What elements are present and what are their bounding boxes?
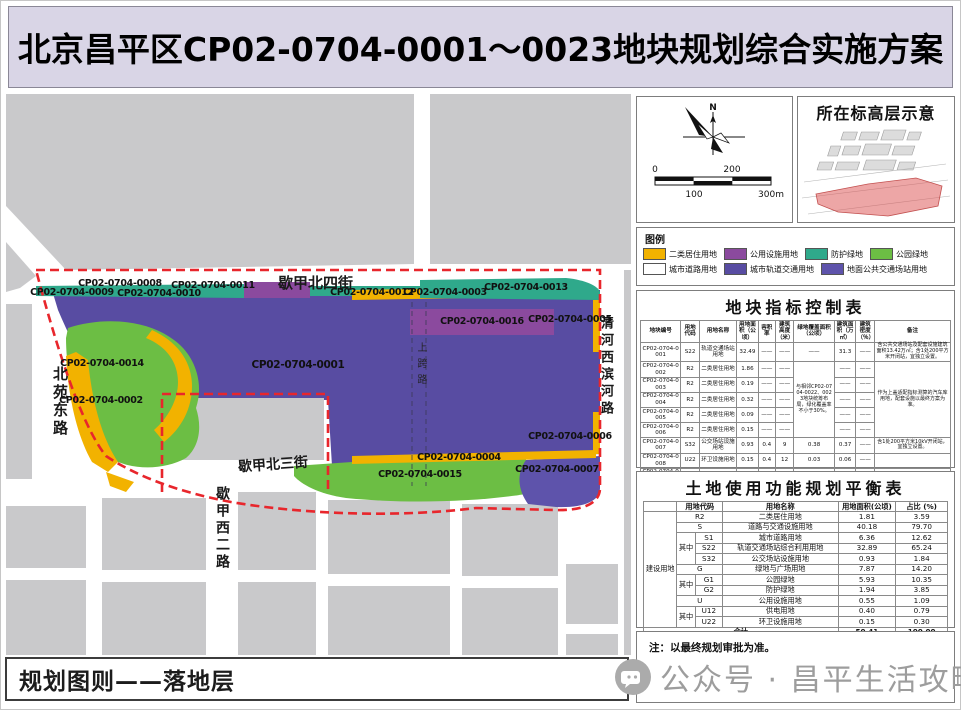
cell: —— (775, 408, 794, 423)
cell: 二类居住用地 (699, 362, 736, 377)
transit-swatch-icon (821, 263, 844, 275)
legend-item-transit-station: 地面公共交通场站用地 (821, 263, 927, 275)
control-table-title: 地块指标控制表 (637, 294, 954, 318)
cell: 防护绿地 (723, 585, 839, 596)
header-cell: 建筑面积（万㎡） (834, 321, 856, 343)
cell: 公用设施用地 (723, 596, 839, 607)
table-row: U公用设施用地0.551.09 (644, 596, 948, 607)
cell: —— (775, 423, 794, 438)
cell: 40.18 (838, 522, 896, 533)
legend-item-park-green: 公园绿地 (870, 248, 928, 260)
header-cell: 用地代码 (677, 502, 723, 512)
cell: 其中 (677, 575, 695, 596)
protective-green-swatch-icon (805, 248, 828, 260)
cell: 9 (775, 438, 794, 453)
cell: 0.79 (896, 606, 948, 617)
cell: U (677, 596, 723, 607)
plot-0002-area-tip (106, 472, 134, 492)
cell: 0.4 (758, 438, 775, 453)
cell (874, 453, 950, 468)
cell: 0.40 (838, 606, 896, 617)
cell: —— (775, 362, 794, 377)
cell: —— (758, 377, 775, 392)
table-row: 建设用地R2二类居住用地1.813.59 (644, 512, 948, 523)
cell: 3.85 (896, 585, 948, 596)
header-cell: 用地代码 (681, 321, 700, 343)
cell: S1 (695, 533, 722, 544)
elevation-title: 所在标高层示意 (798, 100, 954, 124)
cell: 公交场站设施用地 (699, 438, 736, 453)
scale-bar: 0 200 100 300m (652, 165, 784, 200)
cell: —— (856, 423, 875, 438)
header-cell: 地块编号 (641, 321, 681, 343)
cell: 0.09 (737, 408, 759, 423)
cell: 6.36 (838, 533, 896, 544)
balance-table: 用地代码用地名称用地面积(公顷)占比 (%)建设用地R2二类居住用地1.813.… (637, 501, 954, 638)
cell: 二类居住用地 (723, 512, 839, 523)
cell: R2 (677, 512, 723, 523)
cell: —— (834, 362, 856, 377)
cell: —— (834, 423, 856, 438)
header-cell: 用地名称 (723, 502, 839, 512)
cell: 1.81 (838, 512, 896, 523)
control-table-panel: 地块指标控制表 地块编号用地代码用地名称用地面积（公顷）容积率建筑高度（米）绿地… (636, 290, 955, 468)
table-row: CP02-0704-0007S32公交场站设施用地0.930.490.380.3… (641, 438, 951, 453)
cell: 14.20 (896, 564, 948, 575)
cell: —— (794, 342, 834, 362)
cell: 公交场站设施用地 (723, 554, 839, 565)
compass-rose-icon (683, 107, 745, 155)
cell: —— (758, 342, 775, 362)
legend-title: 图例 (645, 231, 954, 246)
cell: —— (834, 392, 856, 407)
cell: 79.70 (896, 522, 948, 533)
cell: 1.84 (896, 554, 948, 565)
park-green-swatch-icon (870, 248, 893, 260)
cell: 0.38 (794, 438, 834, 453)
road-swatch-icon (643, 263, 666, 275)
cell: 0.55 (838, 596, 896, 607)
cell: 环卫设施用地 (723, 617, 839, 628)
header-cell: 容积率 (758, 321, 775, 343)
cell: U22 (681, 453, 700, 468)
cell: CP02-0704-0005 (641, 408, 681, 423)
cell: —— (856, 342, 875, 362)
residential-swatch-icon (643, 248, 666, 260)
cell: 32.49 (737, 342, 759, 362)
legend-item-protective-green: 防护绿地 (805, 248, 863, 260)
legend-item-residential: 二类居住用地 (643, 248, 717, 260)
page-title: 北京昌平区CP02-0704-0001～0023地块规划综合实施方案 (18, 23, 943, 71)
scale-100: 100 (685, 190, 702, 200)
header-cell: 备注 (874, 321, 950, 343)
table-row: CP02-0704-0001S22轨道交通场站用地32.49——————31.3… (641, 342, 951, 362)
cell: S22 (681, 342, 700, 362)
rail-swatch-icon (724, 263, 747, 275)
sheet-name-label: 规划图则——落地层 (19, 662, 235, 696)
compass-scale-drawing: N 0 200 100 300m (637, 97, 790, 220)
plot-0007-area (519, 456, 600, 507)
plot-0015-area (294, 458, 526, 501)
footer-bar: 规划图则——落地层 (5, 657, 629, 701)
elevation-highlight-area (816, 178, 942, 216)
header-cell: 用地面积（公顷） (737, 321, 759, 343)
cell: 0.32 (737, 392, 759, 407)
zoning-map: 歇甲北四街 北苑东路 清河西滨河路 歇甲北三街 歇甲西二路 上跨路 CP02-0… (6, 94, 631, 655)
table-header-row: 用地代码用地名称用地面积(公顷)占比 (%) (644, 502, 948, 512)
cell: 二类居住用地 (699, 377, 736, 392)
cell: 二类居住用地 (699, 392, 736, 407)
cell: 12 (775, 453, 794, 468)
header-cell (644, 502, 677, 512)
cell: 0.30 (896, 617, 948, 628)
cell: R2 (681, 377, 700, 392)
cell: 其中 (677, 533, 695, 565)
cell: —— (758, 408, 775, 423)
cell: 3.59 (896, 512, 948, 523)
balance-table-title: 土地使用功能规划平衡表 (637, 475, 954, 499)
cell: —— (758, 362, 775, 377)
cell: S32 (681, 438, 700, 453)
cell: —— (775, 377, 794, 392)
cell: 0.15 (838, 617, 896, 628)
plot-0008-area (244, 282, 310, 298)
legend-row-2: 城市道路用地 城市轨道交通用地 地面公共交通场站用地 (643, 263, 954, 275)
cell: R2 (681, 392, 700, 407)
cell: —— (856, 408, 875, 423)
cell: —— (758, 423, 775, 438)
cell: 公园绿地 (723, 575, 839, 586)
cell: 32.89 (838, 543, 896, 554)
cell: G2 (695, 585, 722, 596)
cell: R2 (681, 423, 700, 438)
cell: 0.03 (794, 453, 834, 468)
header-cell: 建筑高度（米） (775, 321, 794, 343)
cell: 7.87 (838, 564, 896, 575)
cell: S (677, 522, 723, 533)
cell: 1.86 (737, 362, 759, 377)
cell: 12.62 (896, 533, 948, 544)
cell: —— (775, 392, 794, 407)
cell: —— (856, 438, 875, 453)
cell: 0.37 (834, 438, 856, 453)
utility-swatch-icon (724, 248, 747, 260)
cell: 建设用地 (644, 512, 677, 628)
note-text: 注：以最终规划审批为准。 (649, 640, 954, 655)
plot-0006-area (593, 412, 600, 454)
cell: S32 (695, 554, 722, 565)
cell: CP02-0704-0006 (641, 423, 681, 438)
cell: —— (856, 392, 875, 407)
legend-item-rail: 城市轨道交通用地 (724, 263, 814, 275)
table-row: 其中G1公园绿地5.9310.35 (644, 575, 948, 586)
table-row: 其中S1城市道路用地6.3612.62 (644, 533, 948, 544)
cell: 含1处200平方米10kV开闭站，宜独立设置。 (874, 438, 950, 453)
cell: 31.3 (834, 342, 856, 362)
balance-table-panel: 土地使用功能规划平衡表 用地代码用地名称用地面积(公顷)占比 (%)建设用地R2… (636, 471, 955, 628)
cell: 0.93 (737, 438, 759, 453)
cell: G1 (695, 575, 722, 586)
header-cell: 用地名称 (699, 321, 736, 343)
cell: 道路与交通设施用地 (723, 522, 839, 533)
legend-row-1: 二类居住用地 公用设施用地 防护绿地 公园绿地 (643, 248, 954, 260)
cell: 10.35 (896, 575, 948, 586)
table-row: 其中U12供电用地0.400.79 (644, 606, 948, 617)
cell: CP02-0704-0002 (641, 362, 681, 377)
cell: 0.19 (737, 377, 759, 392)
cell: —— (856, 377, 875, 392)
legend-panel: 图例 二类居住用地 公用设施用地 防护绿地 公园绿地 城市道路用地 城市轨道交通… (636, 227, 955, 286)
cell: —— (834, 377, 856, 392)
plot-0009-area (36, 284, 244, 298)
cell: CP02-0704-0004 (641, 392, 681, 407)
table-header-row: 地块编号用地代码用地名称用地面积（公顷）容积率建筑高度（米）绿地覆盖面积（公顷）… (641, 321, 951, 343)
zoning-map-canvas (6, 94, 631, 655)
cell: 绿地与广场用地 (723, 564, 839, 575)
table-row: CP02-0704-0002R2二类居住用地1.86————与相邻CP02-07… (641, 362, 951, 377)
cell: G (677, 564, 723, 575)
header-cell: 用地面积(公顷) (838, 502, 896, 512)
table-row: G绿地与广场用地7.8714.20 (644, 564, 948, 575)
scale-200: 200 (723, 165, 740, 175)
cell: 1.94 (838, 585, 896, 596)
plot-0016-area (410, 309, 554, 335)
cell: 二类居住用地 (699, 408, 736, 423)
cell: R2 (681, 362, 700, 377)
cell: 供电用地 (723, 606, 839, 617)
cell: CP02-0704-0003 (641, 377, 681, 392)
plot-0013-area (420, 278, 600, 300)
legend-item-utility: 公用设施用地 (724, 248, 798, 260)
cell: —— (856, 362, 875, 377)
cell: 环卫设施用地 (699, 453, 736, 468)
cell: 轨道交通场站综合利用用地 (723, 543, 839, 554)
scale-0: 0 (652, 165, 658, 175)
cell: 城市道路用地 (723, 533, 839, 544)
elevation-panel: 所在标高层示意 (797, 96, 955, 223)
compass-panel: N 0 200 100 300m (636, 96, 793, 223)
header-cell: 绿地覆盖面积（公顷） (794, 321, 834, 343)
cell: 0.06 (834, 453, 856, 468)
cell: CP02-0704-0007 (641, 438, 681, 453)
cell: 与相邻CP02-0704-0022、0023地块统筹布局，绿化覆盖率不小于30%… (794, 362, 834, 438)
cell: U22 (695, 617, 722, 628)
cell: 0.4 (758, 453, 775, 468)
title-bar: 北京昌平区CP02-0704-0001～0023地块规划综合实施方案 (8, 6, 953, 88)
cell: 含公共交通场站及配套设施建筑面积13.42万㎡；含1处200平方米开闭站，宜独立… (874, 342, 950, 362)
cell: 0.15 (737, 453, 759, 468)
data-table: 用地代码用地名称用地面积(公顷)占比 (%)建设用地R2二类居住用地1.813.… (643, 501, 948, 638)
table-row: CP02-0704-0008U22环卫设施用地0.150.4120.030.06… (641, 453, 951, 468)
cell: 0.15 (737, 423, 759, 438)
header-cell: 建筑密度（％） (856, 321, 875, 343)
elevation-sketch (798, 124, 952, 222)
cell: —— (834, 408, 856, 423)
cell: U12 (695, 606, 722, 617)
cell: CP02-0704-0008 (641, 453, 681, 468)
cell: 65.24 (896, 543, 948, 554)
scale-300: 300m (758, 190, 784, 200)
cell: 二类居住用地 (699, 423, 736, 438)
note-panel: 注：以最终规划审批为准。 (636, 631, 955, 703)
legend-item-road: 城市道路用地 (643, 263, 717, 275)
cell: 1.09 (896, 596, 948, 607)
cell: 0.93 (838, 554, 896, 565)
cell: 5.93 (838, 575, 896, 586)
table-row: S道路与交通设施用地40.1879.70 (644, 522, 948, 533)
cell: 作为上盖适配指标测算的汽车库用地，配套设施以最终方案为准。 (874, 362, 950, 438)
cell: 轨道交通场站用地 (699, 342, 736, 362)
cell: S22 (695, 543, 722, 554)
cell: —— (856, 453, 875, 468)
cell: R2 (681, 408, 700, 423)
cell: 其中 (677, 606, 695, 627)
cell: CP02-0704-0001 (641, 342, 681, 362)
north-label: N (709, 103, 717, 113)
cell: —— (775, 342, 794, 362)
header-cell: 占比 (%) (896, 502, 948, 512)
cell: —— (758, 392, 775, 407)
